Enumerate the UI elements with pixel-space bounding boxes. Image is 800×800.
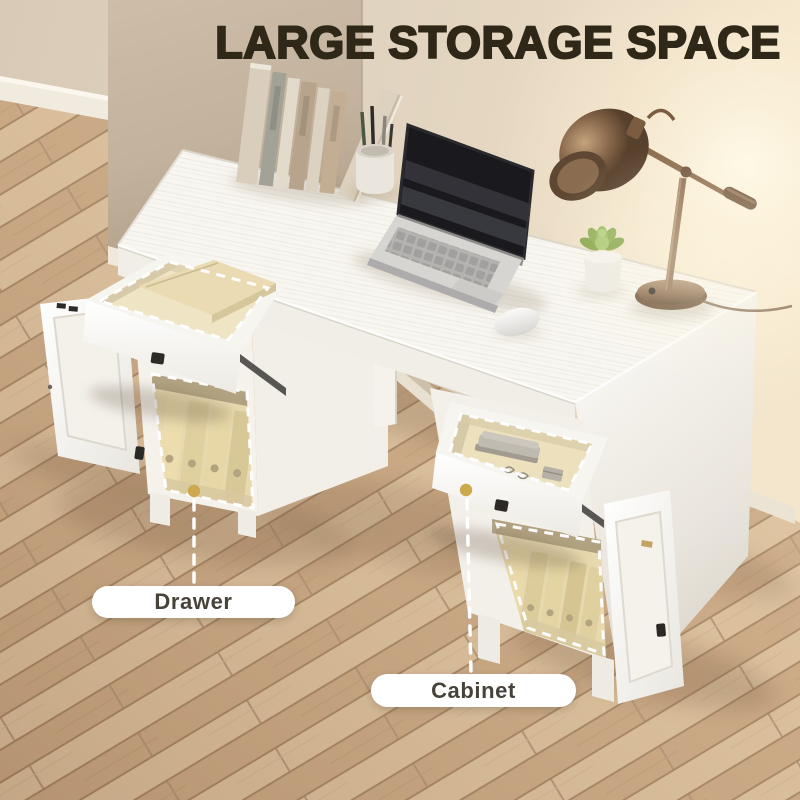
door-hinge — [57, 303, 66, 309]
door-screw — [48, 385, 52, 389]
door-hinge — [69, 306, 78, 312]
cabinet-label: Cabinet — [431, 678, 516, 703]
headline-title: LARGE STORAGE SPACE — [215, 17, 780, 68]
drawer-label: Drawer — [154, 589, 232, 614]
door-handle — [134, 446, 145, 460]
drawer-knob — [150, 352, 164, 365]
open-cabinet-right-door — [604, 490, 684, 704]
gold-anchor-dot — [188, 485, 200, 497]
cup-inside — [361, 146, 389, 156]
drawer-knob — [494, 499, 509, 512]
product-image: Drawer Cabinet LARGE STORAGE SPACE — [0, 0, 800, 800]
scene-svg: Drawer Cabinet LARGE STORAGE SPACE — [0, 0, 800, 800]
pedestal-leg — [478, 614, 500, 664]
pedestal-leg — [150, 492, 170, 526]
gold-anchor-dot — [460, 484, 472, 496]
cup-body — [356, 152, 394, 194]
door-handle — [656, 623, 666, 637]
pedestal-leg — [238, 508, 256, 538]
pedestal-leg — [592, 654, 614, 702]
